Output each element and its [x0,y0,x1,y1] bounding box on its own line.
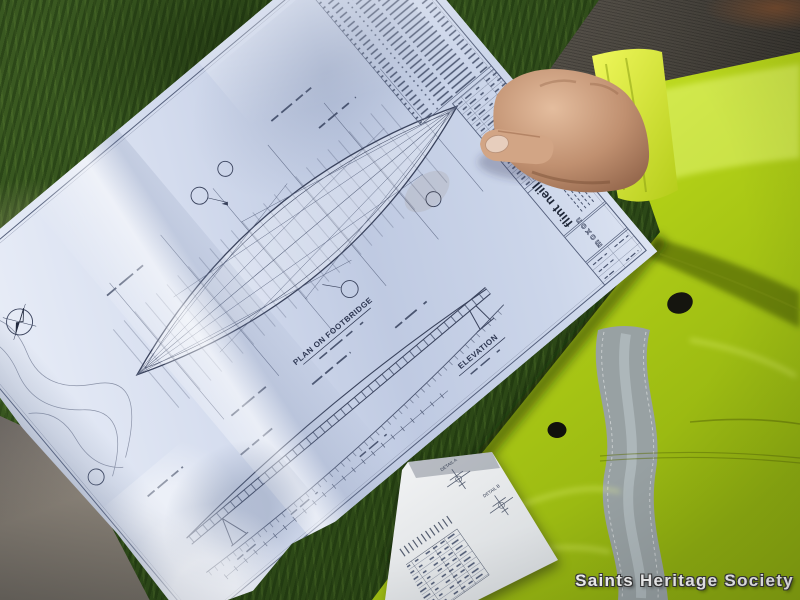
elevation-title-label: ELEVATION [456,333,499,371]
jacket-grommet [548,422,567,438]
architect-logo-text: moxon [572,214,605,250]
caption-text: Saints Heritage Society [575,571,794,591]
photo-frame: DETAIL A DETAIL B flint neill [0,0,800,600]
plan-title-label: PLAN ON FOOTBRIDGE [291,295,374,367]
under-drawing-sheet: DETAIL A DETAIL B flint neill [380,440,570,600]
north-arrow-icon [0,301,41,343]
holding-hand [440,40,690,210]
